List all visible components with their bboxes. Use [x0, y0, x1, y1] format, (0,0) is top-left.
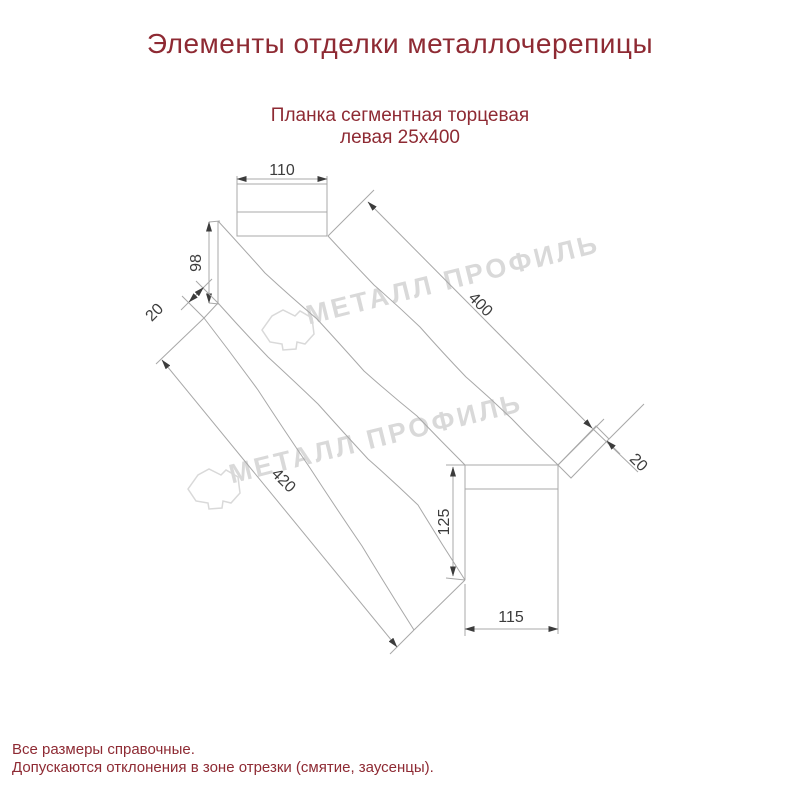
dim-115-label: 115 — [498, 609, 524, 626]
metall-profil-watermark: МЕТАЛЛ ПРОФИЛЬ МЕТАЛЛ ПРОФИЛЬ — [188, 228, 603, 509]
footer-note-line2: Допускаются отклонения в зоне отрезки (с… — [12, 759, 792, 777]
footer-notes: Все размеры справочные. Допускаются откл… — [12, 741, 792, 777]
watermark-text: МЕТАЛЛ ПРОФИЛЬ — [303, 228, 603, 330]
dim-20-right-label: 20 — [626, 451, 651, 476]
top-end-flange — [237, 184, 327, 236]
dimension-420: 420 — [156, 318, 414, 654]
dim-400-label: 400 — [465, 289, 496, 320]
dimension-20-left: 20 — [143, 279, 218, 325]
dim-20-left-label: 20 — [143, 300, 168, 325]
dimension-98: 98 — [188, 221, 220, 304]
right-hem-piece — [558, 426, 609, 478]
dimension-115: 115 — [465, 584, 558, 636]
tail-cut-edge — [414, 580, 465, 630]
left-hem-edge — [204, 303, 218, 318]
dim-110-label: 110 — [269, 162, 295, 179]
dim-98-label: 98 — [188, 254, 205, 272]
dimension-125: 125 — [436, 465, 465, 580]
dimension-110: 110 — [237, 162, 327, 184]
dim-125-label: 125 — [436, 509, 453, 536]
technical-drawing: МЕТАЛЛ ПРОФИЛЬ МЕТАЛЛ ПРОФИЛЬ — [0, 0, 800, 800]
catalog-page: Элементы отделки металлочерепицы Планка … — [0, 0, 800, 800]
footer-note-line1: Все размеры справочные. — [12, 741, 792, 759]
dimension-20-right: 20 — [592, 404, 651, 475]
